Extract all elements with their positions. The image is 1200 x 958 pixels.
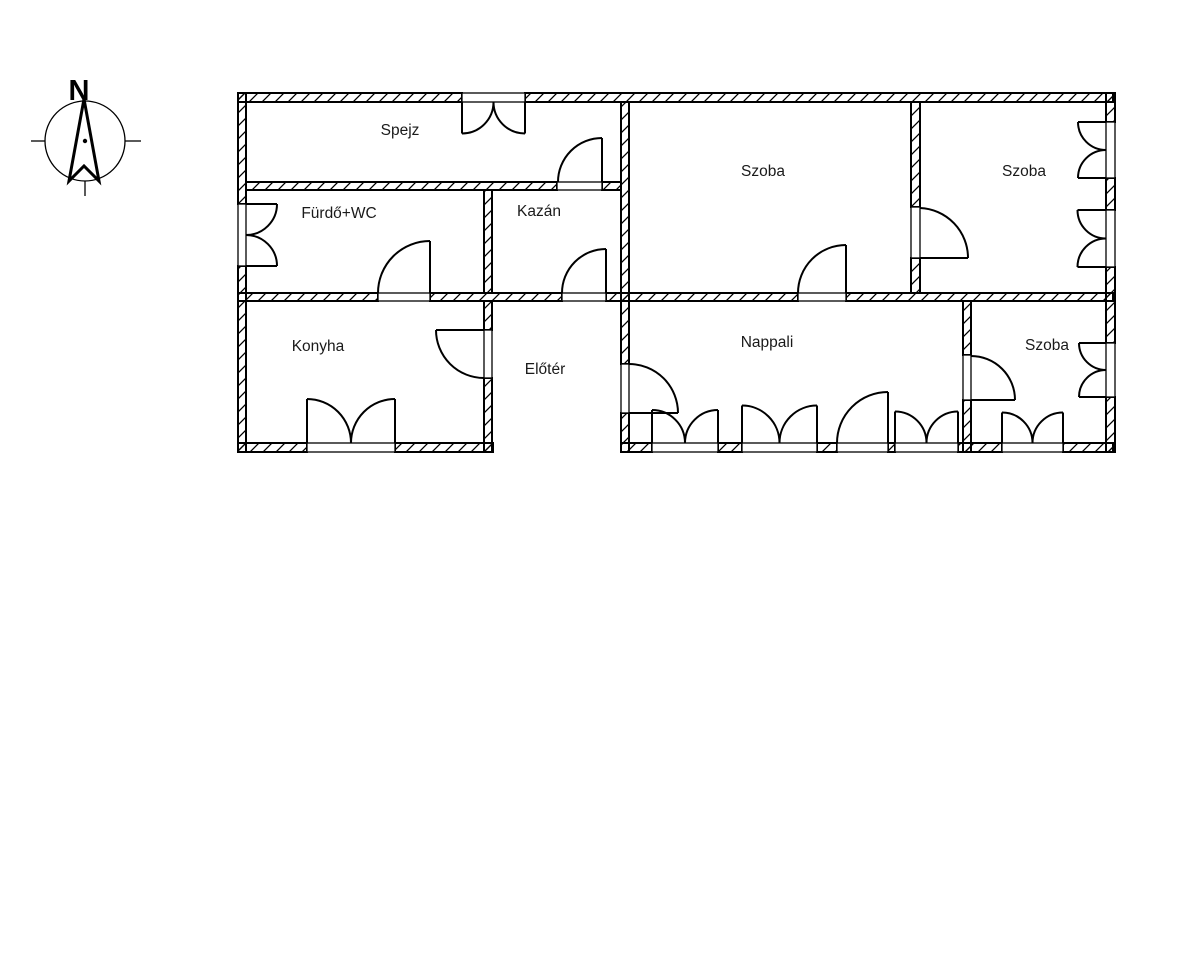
door-opening bbox=[557, 182, 602, 190]
floor-plan: N bbox=[0, 0, 1200, 958]
wall-segment bbox=[1106, 93, 1115, 122]
wall-segment bbox=[602, 182, 621, 190]
room-label-furdo-wc: Fürdő+WC bbox=[301, 205, 376, 222]
wall-segment bbox=[1106, 397, 1115, 452]
window-opening bbox=[238, 204, 246, 266]
wall-segment bbox=[718, 443, 742, 452]
window-opening bbox=[652, 443, 718, 452]
window-opening bbox=[1106, 122, 1115, 178]
north-label: N bbox=[69, 75, 90, 107]
wall-segment bbox=[238, 293, 378, 301]
door-opening bbox=[963, 355, 971, 400]
wall-segment bbox=[963, 400, 971, 452]
wall-segment bbox=[484, 378, 492, 452]
wall-segment bbox=[238, 93, 462, 102]
room-label-kazan: Kazán bbox=[517, 203, 561, 220]
door-opening bbox=[911, 207, 920, 258]
wall-segment bbox=[430, 293, 562, 301]
room-label-spejz: Spejz bbox=[381, 122, 420, 139]
window-opening bbox=[307, 443, 395, 452]
room-label-nappali: Nappali bbox=[741, 334, 794, 351]
window-opening bbox=[742, 443, 817, 452]
window-opening bbox=[1106, 210, 1115, 267]
window-opening bbox=[1106, 343, 1115, 397]
wall-segment bbox=[1106, 267, 1115, 343]
window-opening bbox=[1002, 443, 1063, 452]
door-opening bbox=[378, 293, 430, 301]
wall-segment bbox=[621, 413, 629, 452]
door-opening bbox=[484, 330, 492, 378]
compass-center-dot bbox=[83, 139, 87, 143]
room-spejz bbox=[246, 102, 621, 182]
wall-segment bbox=[817, 443, 837, 452]
room-szoba-bottom-right bbox=[971, 301, 1106, 443]
room-label-szoba-top-right: Szoba bbox=[1002, 163, 1046, 180]
wall-segment bbox=[846, 293, 1113, 301]
wall-segment bbox=[484, 190, 492, 293]
wall-segment bbox=[238, 266, 246, 452]
floor-plan-canvas: N bbox=[0, 0, 1200, 958]
room-label-eloter: Előtér bbox=[525, 361, 566, 378]
room-nappali bbox=[629, 301, 963, 443]
wall-segment bbox=[911, 258, 920, 293]
room-szoba-top-middle bbox=[629, 102, 911, 293]
room-konyha bbox=[246, 301, 484, 443]
wall-segment bbox=[888, 443, 895, 452]
door-opening bbox=[562, 293, 606, 301]
window-opening bbox=[462, 93, 525, 102]
door-opening bbox=[621, 364, 629, 413]
wall-segment bbox=[911, 102, 920, 207]
window-opening bbox=[895, 443, 958, 452]
wall-segment bbox=[606, 293, 798, 301]
room-label-szoba-bottom-right: Szoba bbox=[1025, 337, 1069, 354]
wall-segment bbox=[238, 93, 246, 204]
door-opening bbox=[837, 443, 888, 452]
room-label-szoba-top-middle: Szoba bbox=[741, 163, 785, 180]
wall-segment bbox=[963, 301, 971, 355]
wall-segment bbox=[1106, 178, 1115, 210]
wall-segment bbox=[621, 102, 629, 364]
door-opening bbox=[798, 293, 846, 301]
wall-segment bbox=[395, 443, 493, 452]
compass-rose: N bbox=[31, 75, 141, 196]
wall-segment bbox=[246, 182, 557, 190]
wall-segment bbox=[484, 301, 492, 330]
wall-segment bbox=[238, 443, 307, 452]
room-label-konyha: Konyha bbox=[292, 338, 345, 355]
wall-segment bbox=[525, 93, 1113, 102]
